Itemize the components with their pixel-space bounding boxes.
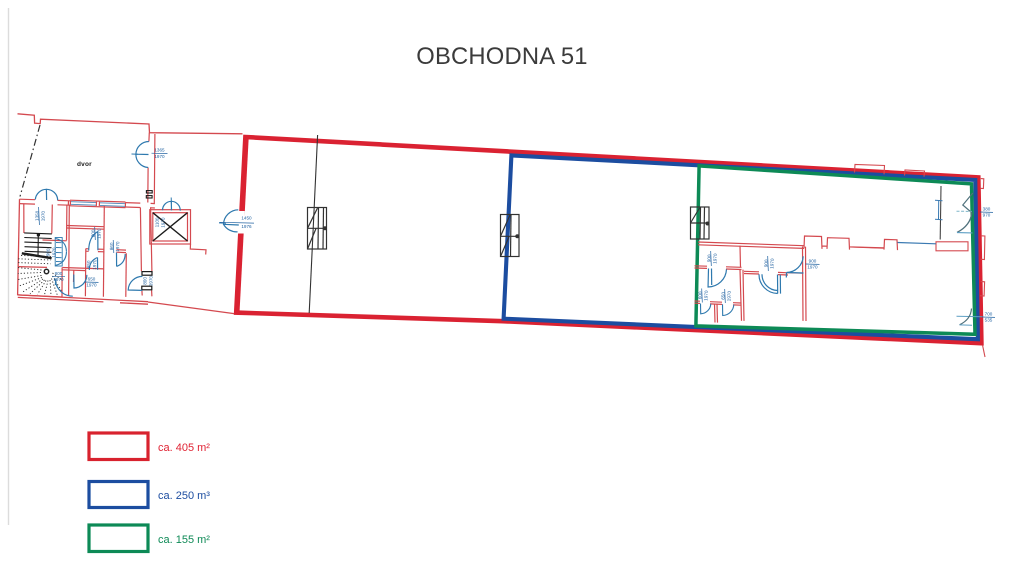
svg-text:380: 380: [983, 207, 991, 212]
svg-text:OBCHODNA 51: OBCHODNA 51: [416, 43, 587, 70]
svg-text:1970: 1970: [52, 247, 57, 258]
svg-text:1970: 1970: [115, 241, 120, 252]
svg-text:1970: 1970: [807, 265, 818, 270]
svg-text:1970: 1970: [769, 258, 775, 269]
svg-text:ca. 250 m³: ca. 250 m³: [158, 490, 210, 502]
svg-text:800: 800: [55, 271, 63, 276]
svg-text:1970: 1970: [726, 290, 732, 301]
svg-text:1100: 1100: [155, 217, 160, 227]
svg-text:970: 970: [983, 213, 991, 218]
svg-text:1450: 1450: [241, 216, 252, 221]
svg-text:1970: 1970: [41, 210, 46, 221]
svg-text:650: 650: [88, 277, 96, 282]
svg-text:850: 850: [86, 260, 91, 268]
svg-text:700: 700: [985, 312, 993, 317]
svg-text:900: 900: [809, 259, 817, 264]
svg-text:ca. 405 m²: ca. 405 m²: [158, 442, 210, 454]
svg-text:1970: 1970: [53, 277, 64, 282]
svg-text:1970: 1970: [92, 259, 97, 270]
svg-text:1970: 1970: [97, 228, 102, 239]
svg-text:1365: 1365: [154, 148, 165, 153]
svg-text:1970: 1970: [148, 275, 153, 286]
svg-text:ca. 155 m²: ca. 155 m²: [158, 534, 210, 546]
svg-text:1970: 1970: [154, 154, 165, 159]
svg-text:1970: 1970: [703, 290, 709, 301]
svg-text:1970: 1970: [161, 217, 166, 228]
svg-text:1976: 1976: [241, 224, 252, 229]
svg-text:800: 800: [142, 277, 147, 285]
svg-text:dvor: dvor: [77, 161, 92, 168]
svg-text:900: 900: [46, 248, 51, 256]
svg-text:1970: 1970: [712, 253, 718, 264]
svg-text:1970: 1970: [86, 282, 97, 287]
svg-text:535: 535: [985, 318, 993, 323]
